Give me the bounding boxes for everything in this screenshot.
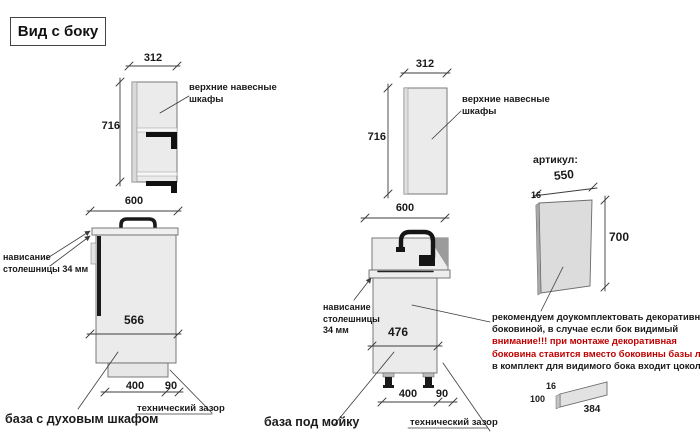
adjustable-foot-left: [383, 373, 394, 388]
overhang-label-left-line2: столешницы 34 мм: [3, 264, 88, 276]
dim-700: 700: [609, 231, 629, 244]
drawing-linework: [0, 0, 700, 438]
dim-line-600-middle: [361, 214, 449, 222]
dim-line-700: [601, 196, 609, 291]
overhang-label-middle-line2: столешницы: [323, 314, 380, 326]
overhang-label-left-line1: нависание: [3, 252, 88, 264]
countertop-overhang-tab: [91, 243, 96, 264]
dim-line-550: [533, 183, 597, 198]
article-heading: артикул:: [533, 155, 578, 167]
shelf-band: [137, 128, 177, 132]
oven-base-body: [96, 235, 176, 363]
wall-cabinet-left-side-edge: [132, 82, 137, 182]
plinth-panel-edge: [556, 394, 560, 409]
dim-312-middle: 312: [401, 58, 449, 70]
note-block: рекомендуем доукомплектовать декоративно…: [492, 311, 700, 372]
dim-400-left: 400: [112, 380, 158, 392]
dim-90-middle: 90: [432, 388, 452, 400]
wall-cabinet-left-drawing: [116, 62, 189, 193]
note-warning-line-2: боковина ставится вместо боковины базы л…: [492, 348, 700, 360]
dim-90-left: 90: [161, 380, 181, 392]
bottom-band: [137, 172, 177, 176]
gola-profile-bottom: [146, 181, 177, 193]
decorative-panel: [539, 200, 592, 293]
wall-cabinet-middle-body: [404, 88, 447, 194]
overhang-label-left: нависание столешницы 34 мм: [3, 252, 88, 275]
note-line-3: в комплект для видимого бока входит цоко…: [492, 360, 700, 372]
dim-line-312-middle: [400, 69, 451, 77]
dim-line-600-left: [86, 207, 182, 215]
overhang-arrow-middle: [354, 278, 371, 300]
overhang-label-middle-line3: 34 мм: [323, 325, 380, 337]
dim-100-plinth: 100: [530, 395, 545, 405]
dim-566: 566: [110, 314, 158, 327]
dim-400-middle: 400: [386, 388, 430, 400]
dim-16-plinth: 16: [546, 382, 556, 392]
plinth-recess-left: [108, 363, 168, 377]
note-line-1: рекомендуем доукомплектовать декоративно…: [492, 311, 700, 323]
note-line-2: боковиной, в случае если бок видимый: [492, 323, 700, 335]
tech-gap-label-middle: технический зазор: [410, 417, 498, 429]
dim-312-left: 312: [129, 52, 177, 64]
dim-600-middle: 600: [381, 202, 429, 214]
dim-476: 476: [374, 326, 422, 339]
dim-384-plinth: 384: [574, 404, 610, 415]
oven-door-panel: [97, 236, 101, 316]
dim-16-panel: 16: [531, 191, 541, 201]
wall-cabinet-middle-drawing: [384, 69, 461, 198]
overhang-label-middle: нависание столешницы 34 мм: [323, 302, 380, 337]
dim-600-left: 600: [110, 195, 158, 207]
note-warning-line-1: внимание!!! при монтаже декоративная: [492, 335, 700, 347]
side-panel-drawing: [533, 183, 609, 311]
adjustable-foot-right: [423, 373, 434, 388]
wall-cabinet-middle-side-edge: [404, 88, 408, 194]
sink-base-caption: база под мойку: [264, 416, 359, 430]
countertop-left: [92, 228, 178, 235]
page-title: Вид с боку: [10, 17, 106, 46]
wall-cabinet-left-label: верхние навесные шкафы: [189, 82, 284, 105]
wall-cabinet-middle-label: верхние навесные шкафы: [462, 94, 557, 117]
dim-716-left: 716: [96, 120, 120, 132]
dim-716-middle: 716: [362, 131, 386, 143]
oven-base-caption: база с духовым шкафом: [5, 413, 158, 427]
overhang-label-middle-line1: нависание: [323, 302, 380, 314]
oven-handle-icon: [121, 219, 155, 228]
technical-drawing-canvas: Вид с боку 312 716 верхние навесные шкаф…: [0, 0, 700, 438]
